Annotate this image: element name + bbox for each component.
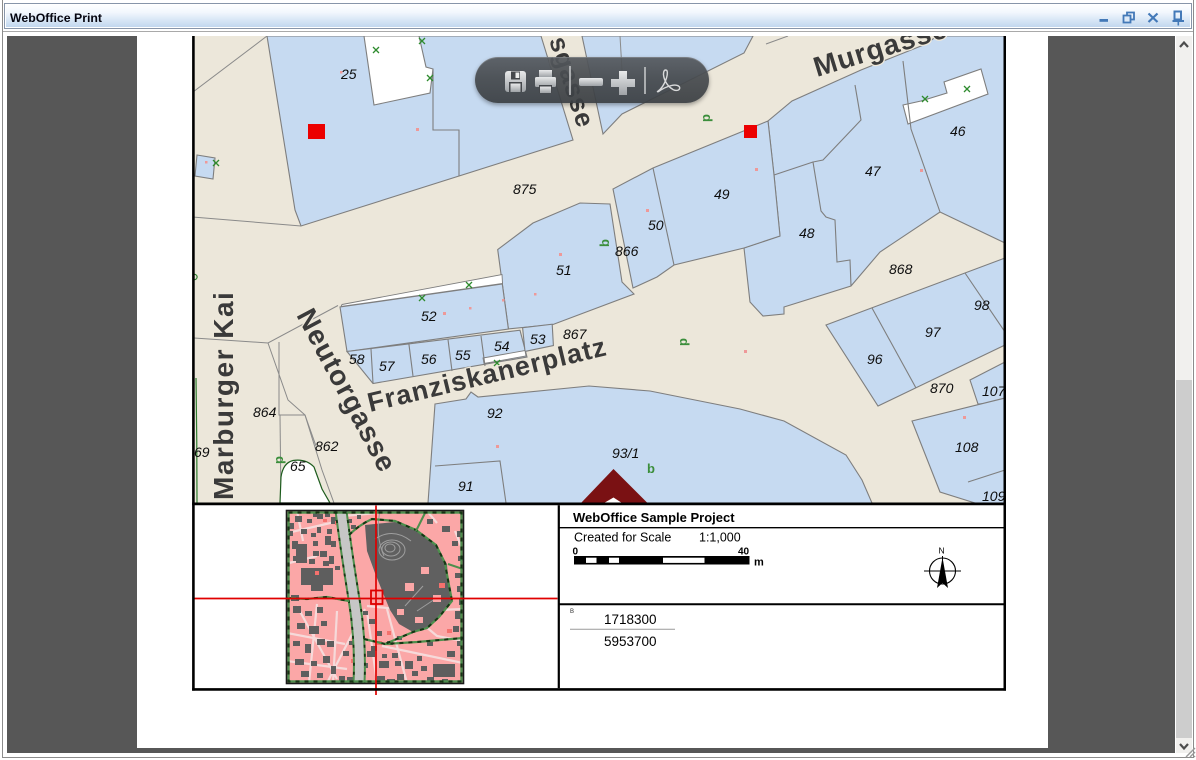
svg-text:p: p [698, 114, 713, 122]
svg-text:866: 866 [615, 243, 639, 259]
svg-text:N: N [939, 546, 945, 556]
svg-text:46: 46 [950, 123, 966, 139]
svg-text:49: 49 [714, 186, 730, 202]
svg-text:m: m [754, 557, 764, 569]
svg-text:50: 50 [648, 217, 664, 233]
svg-text:p: p [675, 338, 690, 346]
svg-text:47: 47 [865, 163, 882, 179]
svg-text:97: 97 [925, 324, 942, 340]
svg-text:875: 875 [513, 181, 537, 197]
svg-text:WebOffice Sample Project: WebOffice Sample Project [573, 510, 735, 525]
svg-text:1:1,000: 1:1,000 [699, 531, 741, 545]
svg-text:p: p [271, 456, 286, 464]
svg-text:53: 53 [530, 331, 546, 347]
svg-text:55: 55 [455, 347, 471, 363]
svg-text:93/1: 93/1 [612, 445, 639, 461]
svg-text:862: 862 [315, 438, 339, 454]
svg-text:107: 107 [982, 383, 1006, 399]
svg-text:864: 864 [253, 404, 277, 420]
svg-text:0: 0 [573, 547, 579, 558]
svg-text:Marburger Kai: Marburger Kai [208, 291, 239, 500]
svg-text:870: 870 [930, 380, 954, 396]
svg-text:54: 54 [494, 338, 510, 354]
svg-text:98: 98 [974, 297, 990, 313]
svg-text:65: 65 [290, 458, 306, 474]
svg-text:Created for Scale: Created for Scale [574, 531, 671, 545]
svg-text:108: 108 [955, 439, 979, 455]
svg-text:57: 57 [379, 358, 396, 374]
svg-text:5953700: 5953700 [604, 634, 657, 649]
svg-text:51: 51 [556, 262, 572, 278]
svg-text:56: 56 [421, 351, 437, 367]
svg-text:92: 92 [487, 405, 503, 421]
svg-text:b: b [647, 461, 655, 476]
svg-text:868: 868 [889, 261, 913, 277]
svg-text:96: 96 [867, 351, 883, 367]
svg-text:40: 40 [738, 547, 750, 558]
svg-text:b: b [597, 239, 612, 247]
svg-text:B: B [570, 609, 574, 615]
svg-text:25: 25 [340, 66, 357, 82]
svg-text:48: 48 [799, 225, 815, 241]
svg-text:1718300: 1718300 [604, 612, 657, 627]
svg-text:109: 109 [982, 488, 1006, 504]
svg-text:52: 52 [421, 308, 437, 324]
svg-text:91: 91 [458, 478, 474, 494]
